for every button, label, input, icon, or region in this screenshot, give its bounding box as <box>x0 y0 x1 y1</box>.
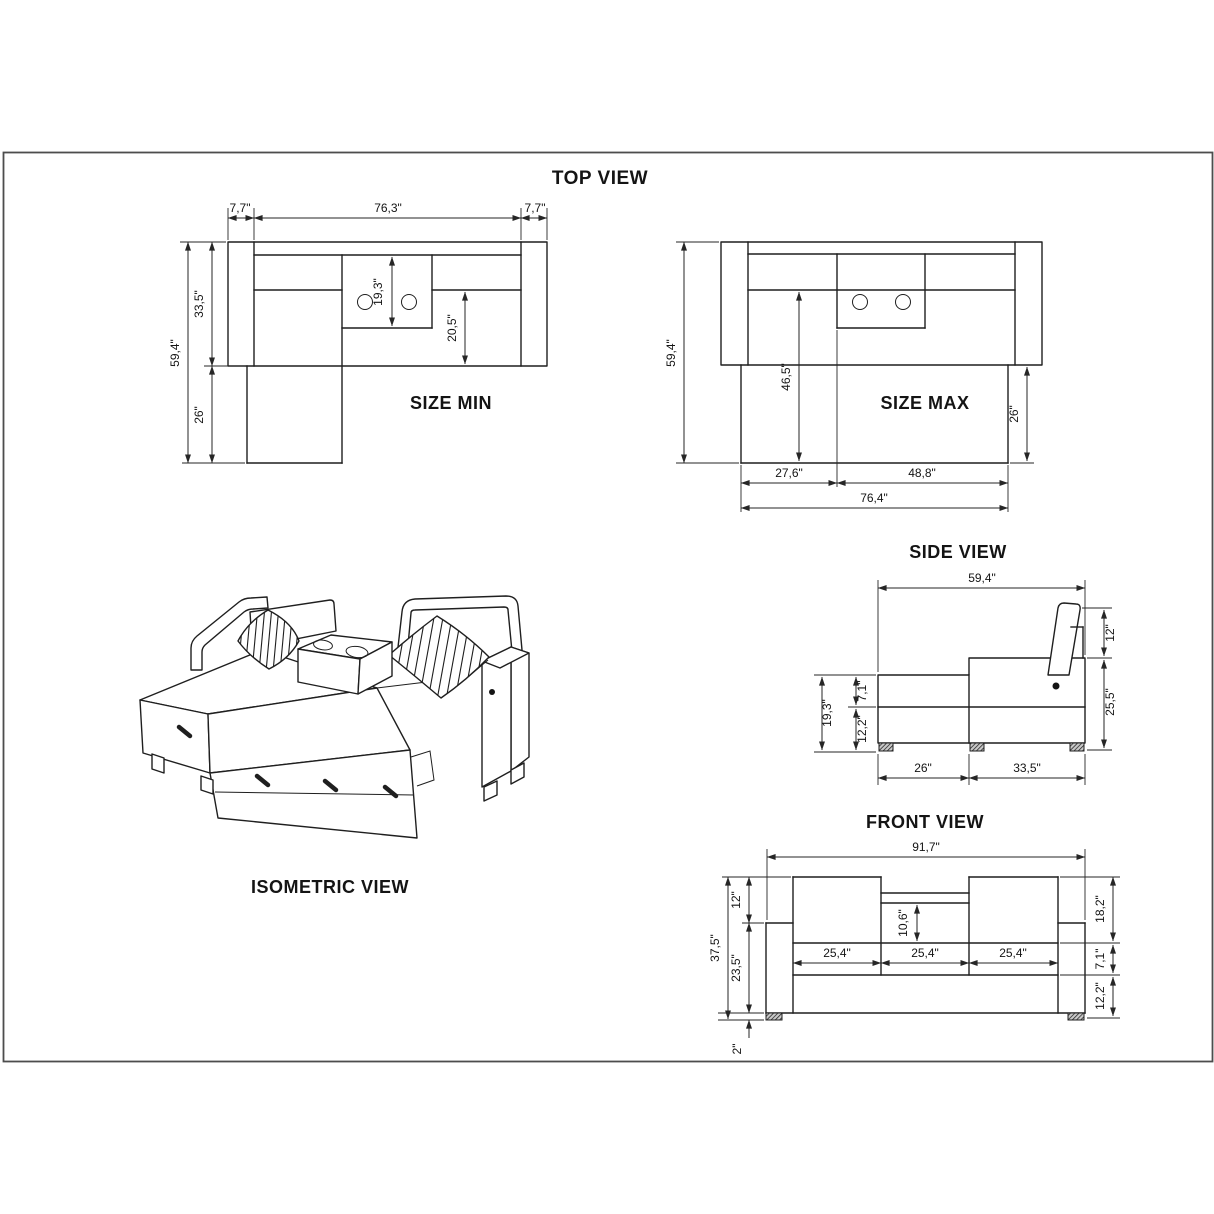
dim-min-arm-left: 7,7" <box>230 201 251 215</box>
usb-port-dot-side <box>1053 683 1060 690</box>
size-min-view: 7,7" 76,3" 7,7" 59,4" 33,5" 26" 19,3" 20… <box>168 201 547 463</box>
front-view-title: FRONT VIEW <box>866 812 984 832</box>
side-view-title: SIDE VIEW <box>909 542 1007 562</box>
dim-side-chaise-height: 19,3" <box>820 699 834 727</box>
sofa-top-outline-min <box>228 242 547 463</box>
dim-front-base-height: 12,2" <box>1093 982 1107 1010</box>
top-view-title: TOP VIEW <box>552 168 648 189</box>
dim-min-arm-right: 7,7" <box>525 201 546 215</box>
sofa-side-outline <box>878 603 1085 751</box>
technical-drawing-canvas: TOP VIEW 7,7" 76 <box>0 0 1214 1214</box>
dim-side-total-depth: 59,4" <box>968 571 996 585</box>
dim-max-total-depth: 59,4" <box>664 339 678 367</box>
dim-front-total-width: 91,7" <box>912 840 940 854</box>
bed-rail <box>411 751 434 786</box>
isometric-view-title: ISOMETRIC VIEW <box>251 877 409 897</box>
dim-front-leg-height: 2" <box>730 1044 744 1055</box>
dim-front-arm-height: 23,5" <box>729 954 743 982</box>
dim-max-bed-depth: 46,5" <box>779 363 793 391</box>
sofa-top-outline-max <box>721 242 1042 463</box>
front-view: FRONT VIEW 91,7" <box>708 812 1120 1054</box>
dim-min-chaise-ext: 26" <box>192 406 206 424</box>
dim-max-bed-ext: 26" <box>1007 405 1021 423</box>
dim-side-backrest-height: 12" <box>1103 624 1117 642</box>
dim-front-backrest-height: 12" <box>729 891 743 909</box>
dim-side-seatback-height: 25,5" <box>1103 688 1117 716</box>
dim-side-chaise-depth: 26" <box>914 761 932 775</box>
dim-min-console-depth: 19,3" <box>371 278 385 306</box>
dim-front-seat-right: 25,4" <box>999 946 1027 960</box>
dim-side-base-height: 12,2" <box>855 715 869 743</box>
size-max-view: 59,4" 46,5" 26" 27,6" 48,8" 76,4" SIZE M… <box>664 242 1042 512</box>
dim-front-seat-left: 25,4" <box>823 946 851 960</box>
dim-min-total-depth: 59,4" <box>168 339 182 367</box>
sofa-isometric-drawing <box>140 596 529 838</box>
front-foot-right <box>1068 1013 1084 1020</box>
dim-front-console-drop: 10,6" <box>896 909 910 937</box>
dim-max-right-width: 48,8" <box>908 466 936 480</box>
sofa-dimensions-diagram: TOP VIEW 7,7" 76 <box>0 0 1214 1214</box>
front-foot-left <box>766 1013 782 1020</box>
dim-front-cushion-height: 7,1" <box>1093 949 1107 970</box>
side-view: SIDE VIEW 59,4" 19,3" 7,1" <box>814 542 1117 785</box>
dim-min-body-depth: 33,5" <box>192 290 206 318</box>
dim-side-seat-depth: 33,5" <box>1013 761 1041 775</box>
dim-min-seat-depth: 20,5" <box>445 314 459 342</box>
size-min-label: SIZE MIN <box>410 393 492 413</box>
dim-min-inner-width: 76,3" <box>374 201 402 215</box>
console <box>298 635 392 694</box>
dim-side-cushion-height: 7,1" <box>855 681 869 702</box>
size-max-label: SIZE MAX <box>880 393 969 413</box>
dim-front-back-total-height: 18,2" <box>1093 895 1107 923</box>
foot-middle <box>970 743 984 751</box>
dim-max-bed-width: 76,4" <box>860 491 888 505</box>
isometric-view: ISOMETRIC VIEW <box>140 596 529 897</box>
foot-left <box>879 743 893 751</box>
foot-right <box>1070 743 1084 751</box>
dim-front-seat-center: 25,4" <box>911 946 939 960</box>
dim-front-total-height: 37,5" <box>708 934 722 962</box>
dim-max-left-width: 27,6" <box>775 466 803 480</box>
usb-port-dot-iso <box>489 689 495 695</box>
